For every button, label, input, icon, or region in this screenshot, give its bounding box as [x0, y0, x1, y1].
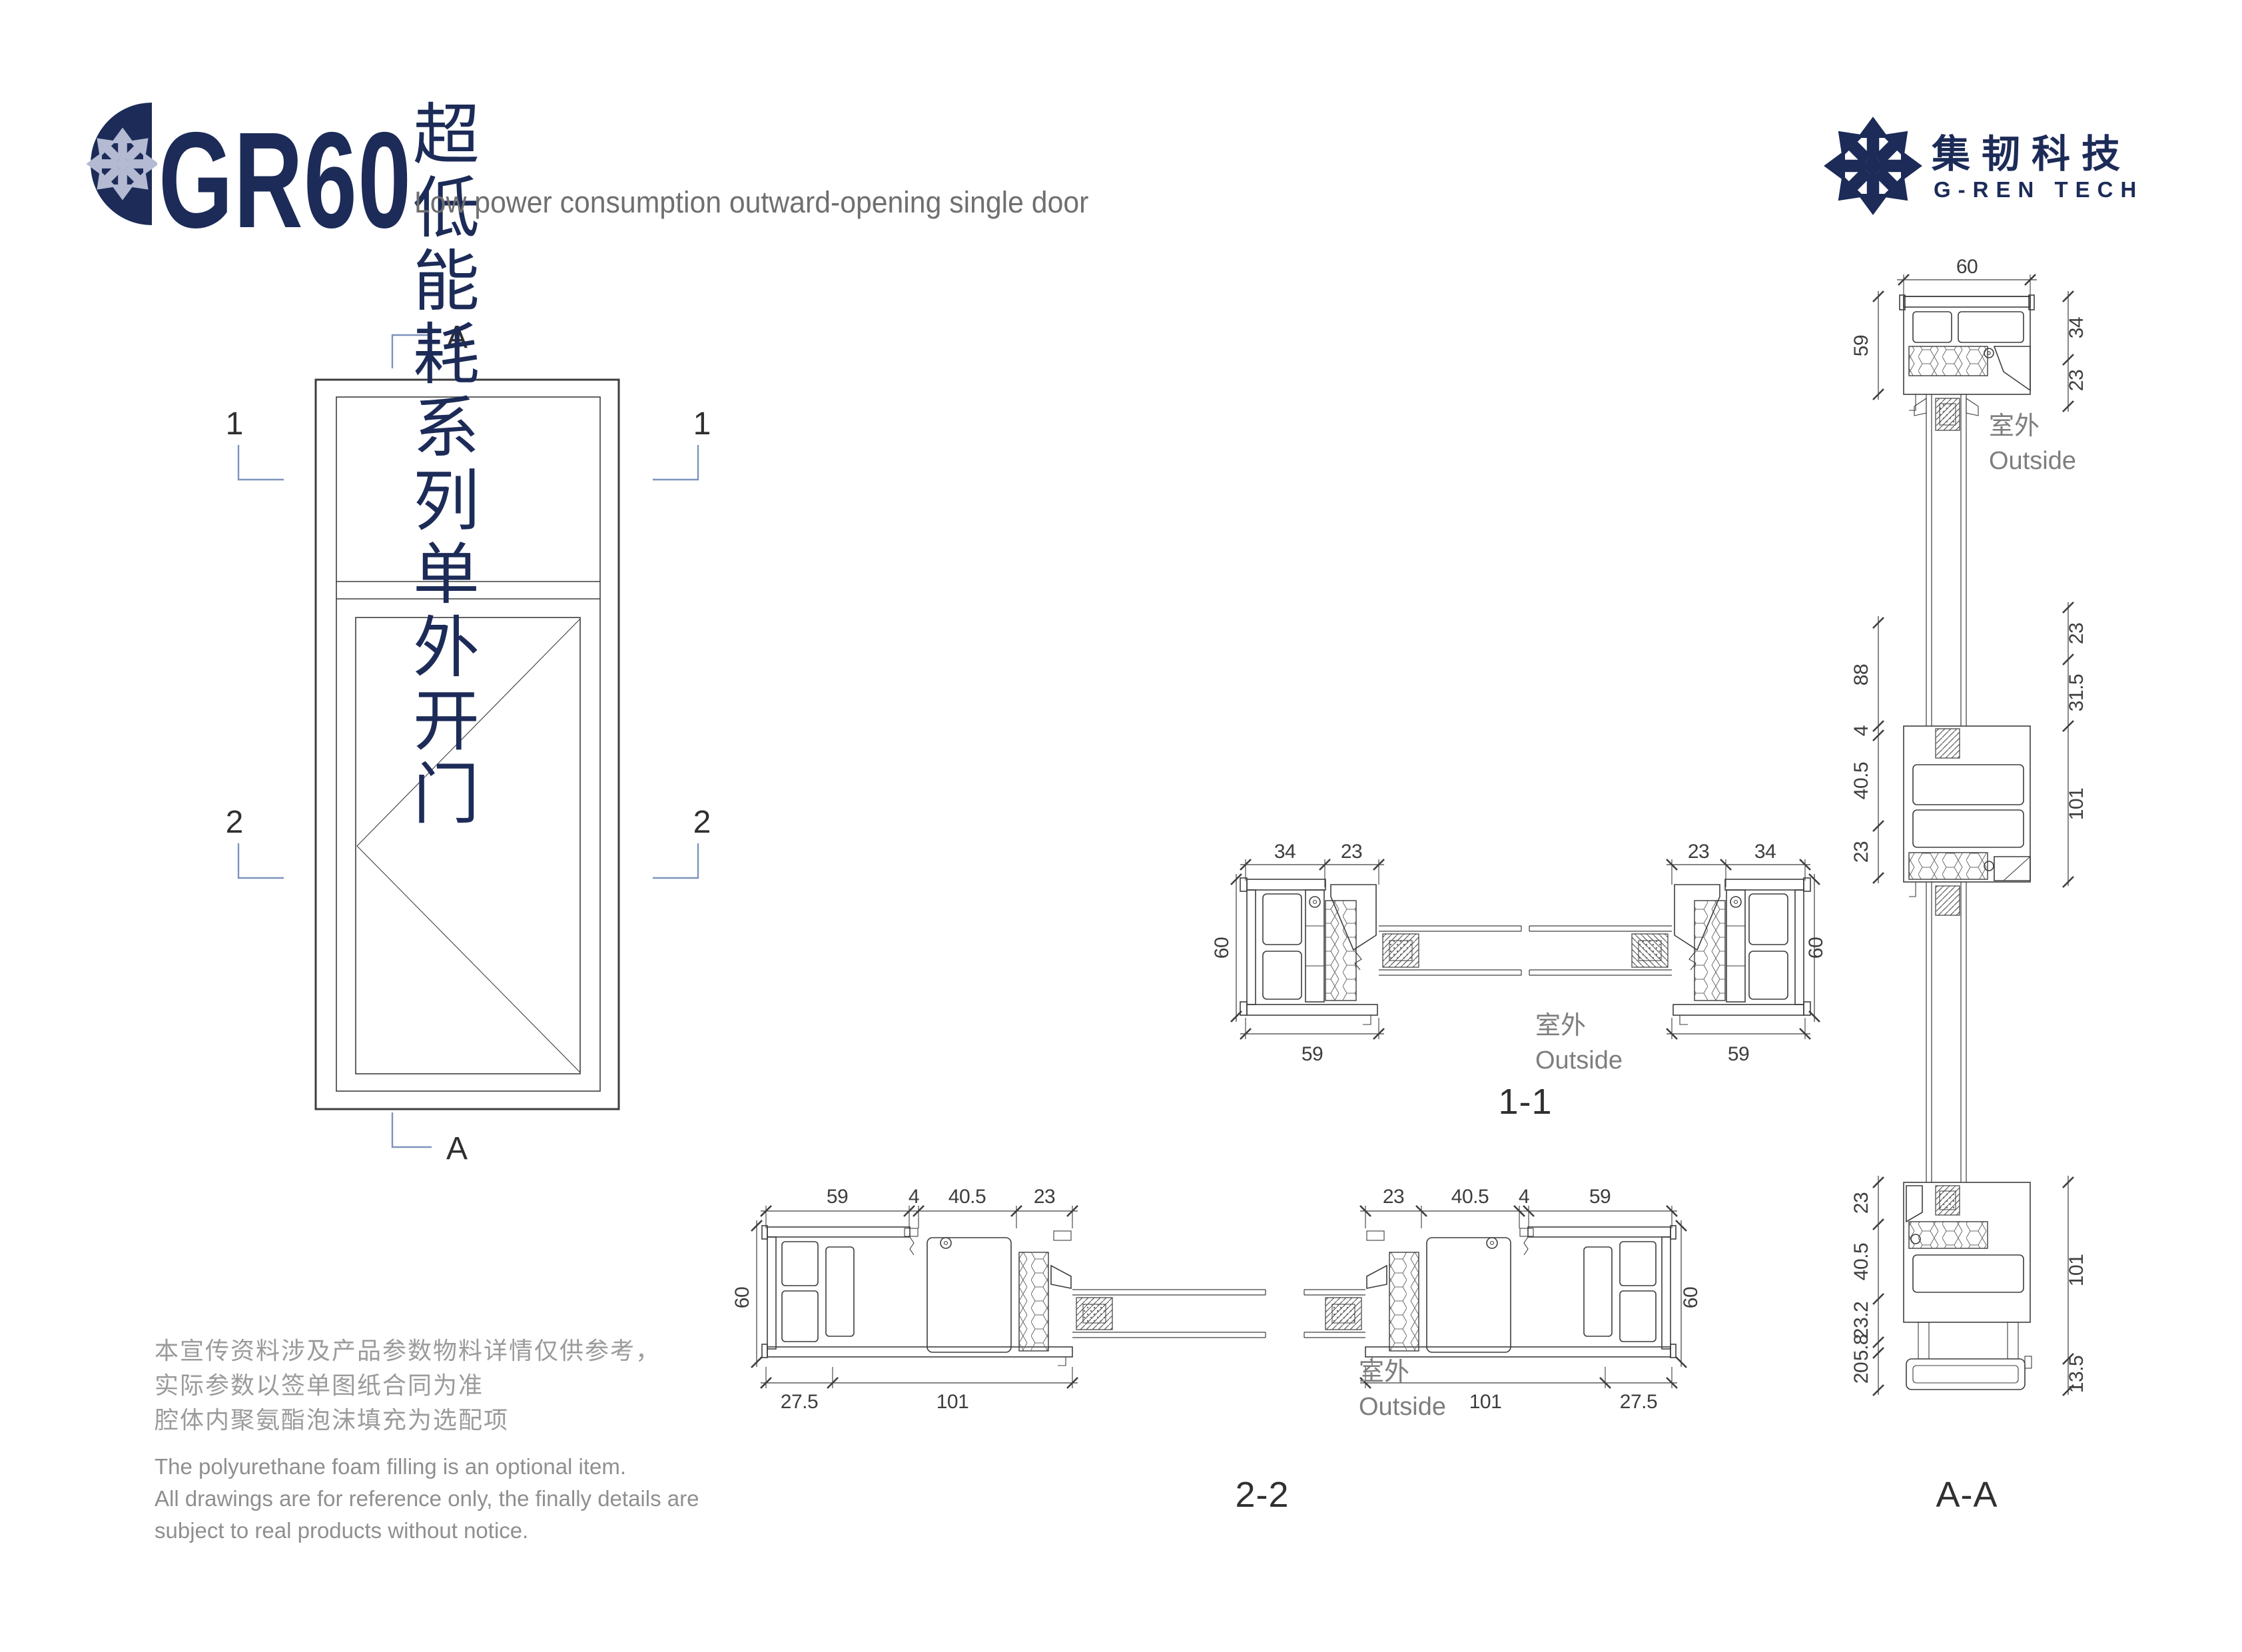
dim-34: 34	[1754, 841, 1776, 863]
dim-4: 4	[1850, 725, 1872, 736]
marker-2-left: 2	[226, 805, 244, 840]
dim-13-5: 13.5	[2065, 1356, 2087, 1393]
dim-23: 23	[1688, 841, 1709, 863]
brand-name-zh: 集韧科技	[1932, 123, 2131, 179]
dim-31-5: 31.5	[2065, 674, 2087, 711]
page-title-en: Low power consumption outward-opening si…	[414, 185, 1088, 220]
dim-60: 60	[1211, 937, 1233, 959]
outside-label-en: Outside	[1535, 1046, 1623, 1074]
disclaimer-en-line: The polyurethane foam filling is an opti…	[155, 1451, 699, 1483]
dim-5-8: 5.8	[1850, 1334, 1872, 1361]
dim-20: 20	[1850, 1362, 1872, 1384]
dim-59: 59	[1728, 1043, 1749, 1065]
section-2-2: 59 4 40.5 23 60 27.5 101 23 40.5 4 59 60…	[731, 1186, 1702, 1515]
dim-23: 23	[2065, 623, 2087, 644]
glazing-left	[1072, 1290, 1266, 1338]
marker-a-bottom-bracket	[392, 1112, 432, 1147]
disclaimer-zh-line: 腔体内聚氨酯泡沫填充为选配项	[155, 1403, 661, 1438]
dim-60: 60	[1680, 1287, 1702, 1308]
dim-40-5: 40.5	[1451, 1186, 1489, 1208]
outside-label-zh: 室外	[1535, 1012, 1586, 1040]
dim-23: 23	[1383, 1186, 1404, 1208]
dim-27-5: 27.5	[781, 1391, 818, 1413]
section-a-a: 60 59 34 23 室外 Outside 88 4 40.5 23 23 3…	[1850, 256, 2087, 1515]
product-code: GR60	[159, 112, 412, 248]
dim-60: 60	[731, 1287, 753, 1308]
dim-40-5: 40.5	[1850, 1243, 1872, 1280]
section-1-1: 34 23 60 59 23 34 60 59 室外 Outside 1-1	[1211, 841, 1827, 1122]
dim-101: 101	[936, 1391, 969, 1413]
glazing-right	[1304, 1290, 1365, 1338]
section-label-2-2: 2-2	[1235, 1475, 1289, 1515]
disclaimer-en-line: subject to real products without notice.	[155, 1515, 699, 1547]
dim-59: 59	[1589, 1186, 1611, 1208]
outside-label-en: Outside	[1989, 447, 2076, 475]
marker-1-right: 1	[693, 406, 711, 442]
marker-2-right-bracket	[653, 843, 698, 878]
marker-2-right: 2	[693, 805, 711, 840]
dim-59: 59	[1302, 1043, 1323, 1065]
section-label-1-1: 1-1	[1498, 1082, 1552, 1122]
datasheet-page: { "header": { "product_code": "GR60", "t…	[0, 0, 2242, 1652]
dim-23: 23	[1850, 841, 1872, 863]
disclaimer-en-line: All drawings are for reference only, the…	[155, 1483, 699, 1515]
outside-label-zh: 室外	[1989, 412, 2040, 440]
dim-23: 23	[1034, 1186, 1055, 1208]
marker-1-left: 1	[226, 406, 244, 442]
dim-101: 101	[2065, 788, 2087, 821]
dim-23: 23	[1850, 1192, 1872, 1214]
dim-40-5: 40.5	[948, 1186, 986, 1208]
brand-logo	[1822, 112, 1924, 220]
marker-1-left-bracket	[238, 445, 284, 480]
dim-59: 59	[1850, 335, 1872, 356]
disclaimer-zh: 本宣传资料涉及产品参数物料详情仅供参考， 实际参数以签单图纸合同为准 腔体内聚氨…	[155, 1334, 661, 1438]
dim-23-2: 23.2	[1850, 1302, 1872, 1339]
dim-101: 101	[2065, 1254, 2087, 1287]
dim-23: 23	[2065, 370, 2087, 391]
transom-profile	[1873, 602, 2073, 1182]
sill-assembly-left	[751, 1206, 1078, 1388]
brand-snowflake-icon	[1824, 117, 1922, 215]
dim-4: 4	[1519, 1186, 1529, 1208]
marker-a-bottom: A	[446, 1131, 468, 1166]
brand-name-en: G-REN TECH	[1934, 177, 2143, 203]
section-label-a-a: A-A	[1936, 1475, 1998, 1515]
dim-34: 34	[2065, 317, 2087, 338]
outside-label-en: Outside	[1359, 1393, 1446, 1421]
jamb-profile-left	[1231, 859, 1521, 1039]
head-profile	[1873, 274, 2073, 726]
dim-60: 60	[1956, 256, 1978, 278]
marker-1-right-bracket	[653, 445, 698, 480]
disclaimer-zh-line: 实际参数以签单图纸合同为准	[155, 1368, 661, 1403]
dim-34: 34	[1274, 841, 1296, 863]
dim-60: 60	[1805, 937, 1827, 959]
sill-profile	[1873, 1176, 2073, 1396]
dim-101: 101	[1469, 1391, 1502, 1413]
dim-27-5: 27.5	[1620, 1391, 1657, 1413]
dim-88: 88	[1850, 664, 1872, 685]
dim-40-5: 40.5	[1850, 762, 1872, 799]
dim-59: 59	[827, 1186, 848, 1208]
disclaimer-zh-line: 本宣传资料涉及产品参数物料详情仅供参考，	[155, 1334, 661, 1368]
disclaimer-en: The polyurethane foam filling is an opti…	[155, 1451, 699, 1547]
dim-23: 23	[1341, 841, 1362, 863]
marker-2-left-bracket	[238, 843, 284, 878]
dim-4: 4	[909, 1186, 919, 1208]
outside-label-zh: 室外	[1359, 1358, 1409, 1386]
logo-mark	[85, 100, 157, 228]
